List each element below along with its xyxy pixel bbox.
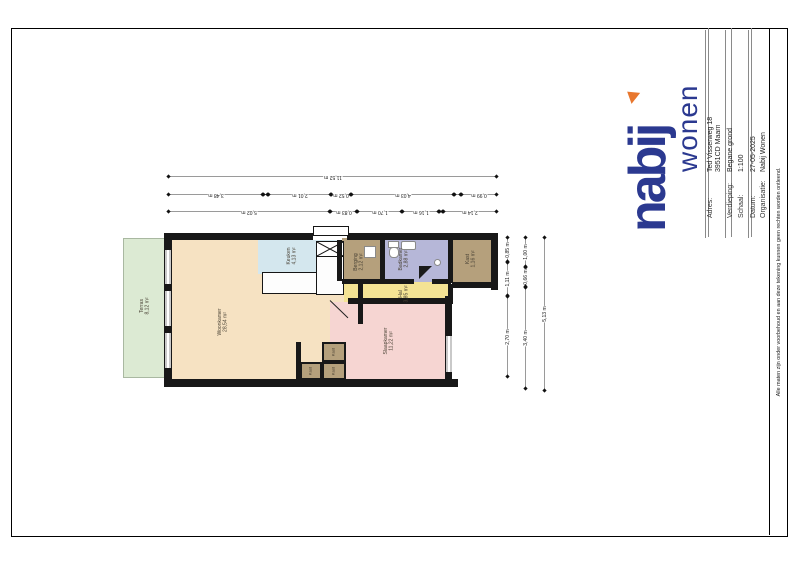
dim-segment: 0,85 m xyxy=(507,237,508,262)
wall xyxy=(452,282,498,288)
logo-word-wonen: wonen xyxy=(672,84,704,172)
field-adres: Adres: Ted Visserweg 18 3951CD Maarn xyxy=(706,30,727,238)
titleblock-fields: Adres: Ted Visserweg 18 3951CD Maarn Ver… xyxy=(705,30,771,238)
label-kast-3: Kast xyxy=(332,367,337,375)
disclaimer-column: Alle maten zijn onder voorbehoud en aan … xyxy=(769,28,789,535)
boiler-unit xyxy=(364,246,376,258)
dim-segment: 3,40 m xyxy=(525,287,526,389)
dim-segment: 0,99 m xyxy=(461,194,497,195)
floorplan-page: Terras8,12 m² Woonkamer28,54 m² Keuken4,… xyxy=(0,0,800,565)
bathroom-door xyxy=(419,266,432,279)
label-woonkamer: Woonkamer28,54 m² xyxy=(217,308,229,335)
wall xyxy=(358,284,363,324)
wall xyxy=(448,284,453,304)
wall xyxy=(337,240,342,281)
adres-line-1: Ted Visserweg 18 xyxy=(707,117,716,172)
label-slaapkamer: Slaapkamer11,22 m² xyxy=(383,328,395,355)
dim-segment: 2,70 m xyxy=(507,296,508,377)
dim-segment: 5,02 m xyxy=(168,211,330,212)
dim-segment: 2,14 m xyxy=(443,211,497,212)
label-terras: Terras8,12 m² xyxy=(139,297,151,314)
company-logo: nabij wonen xyxy=(630,32,706,232)
dim-segment: 1,00 m xyxy=(525,237,526,267)
wall xyxy=(342,279,414,284)
window xyxy=(165,250,171,284)
wall xyxy=(347,233,498,240)
dim-segment: 1,70 m xyxy=(357,211,402,212)
kitchen-counter xyxy=(262,272,320,294)
label-hal: Hal3,85 m² xyxy=(398,285,410,302)
dim-segment: 4,03 m xyxy=(351,194,454,195)
drain-dot xyxy=(434,259,441,266)
field-datum: Datum: 27-05-2025 xyxy=(749,30,760,238)
field-verdieping: Verdieping: Begane grond xyxy=(726,30,737,238)
label-kast-1: Kast xyxy=(332,348,337,356)
window xyxy=(165,333,171,368)
dim-segment: 0,52 m xyxy=(331,194,351,195)
dim-segment: 1,16 m xyxy=(402,211,439,212)
wall xyxy=(380,236,385,282)
field-schaal: Schaal: 1:100 xyxy=(737,30,749,238)
title-block: nabij wonen Adres: Ted Visserweg 18 3951… xyxy=(630,28,770,238)
wall xyxy=(164,233,313,240)
dim-total-width: 11,52 m xyxy=(168,176,497,177)
label-kast-2: Kast xyxy=(309,367,314,375)
dim-segment: 2,01 m xyxy=(268,194,331,195)
dim-total-height: 5,13 m xyxy=(544,237,545,391)
wall xyxy=(448,236,453,283)
label-berging: Berging2,12 m² xyxy=(353,253,365,270)
label-keuken: Keuken4,13 m² xyxy=(286,247,298,264)
dim-segment: 3,48 m xyxy=(168,194,263,195)
label-badkamer: Badkamer2,88 m² xyxy=(398,248,410,271)
wall xyxy=(164,379,458,387)
dim-segment: 0,83 m xyxy=(330,211,357,212)
logo-word-nabij: nabij xyxy=(618,126,678,232)
wall xyxy=(296,342,301,386)
dim-segment: 1,11 m xyxy=(507,262,508,296)
dim-segment: 0,66 m xyxy=(525,267,526,287)
entrance-door xyxy=(313,226,349,236)
window xyxy=(165,291,171,326)
disclaimer-text: Alle maten zijn onder voorbehoud en aan … xyxy=(776,167,781,396)
label-kast-hal: Kast1,16 m² xyxy=(465,250,477,267)
window xyxy=(446,336,452,372)
adres-line-2: 3951CD Maarn xyxy=(715,117,724,172)
